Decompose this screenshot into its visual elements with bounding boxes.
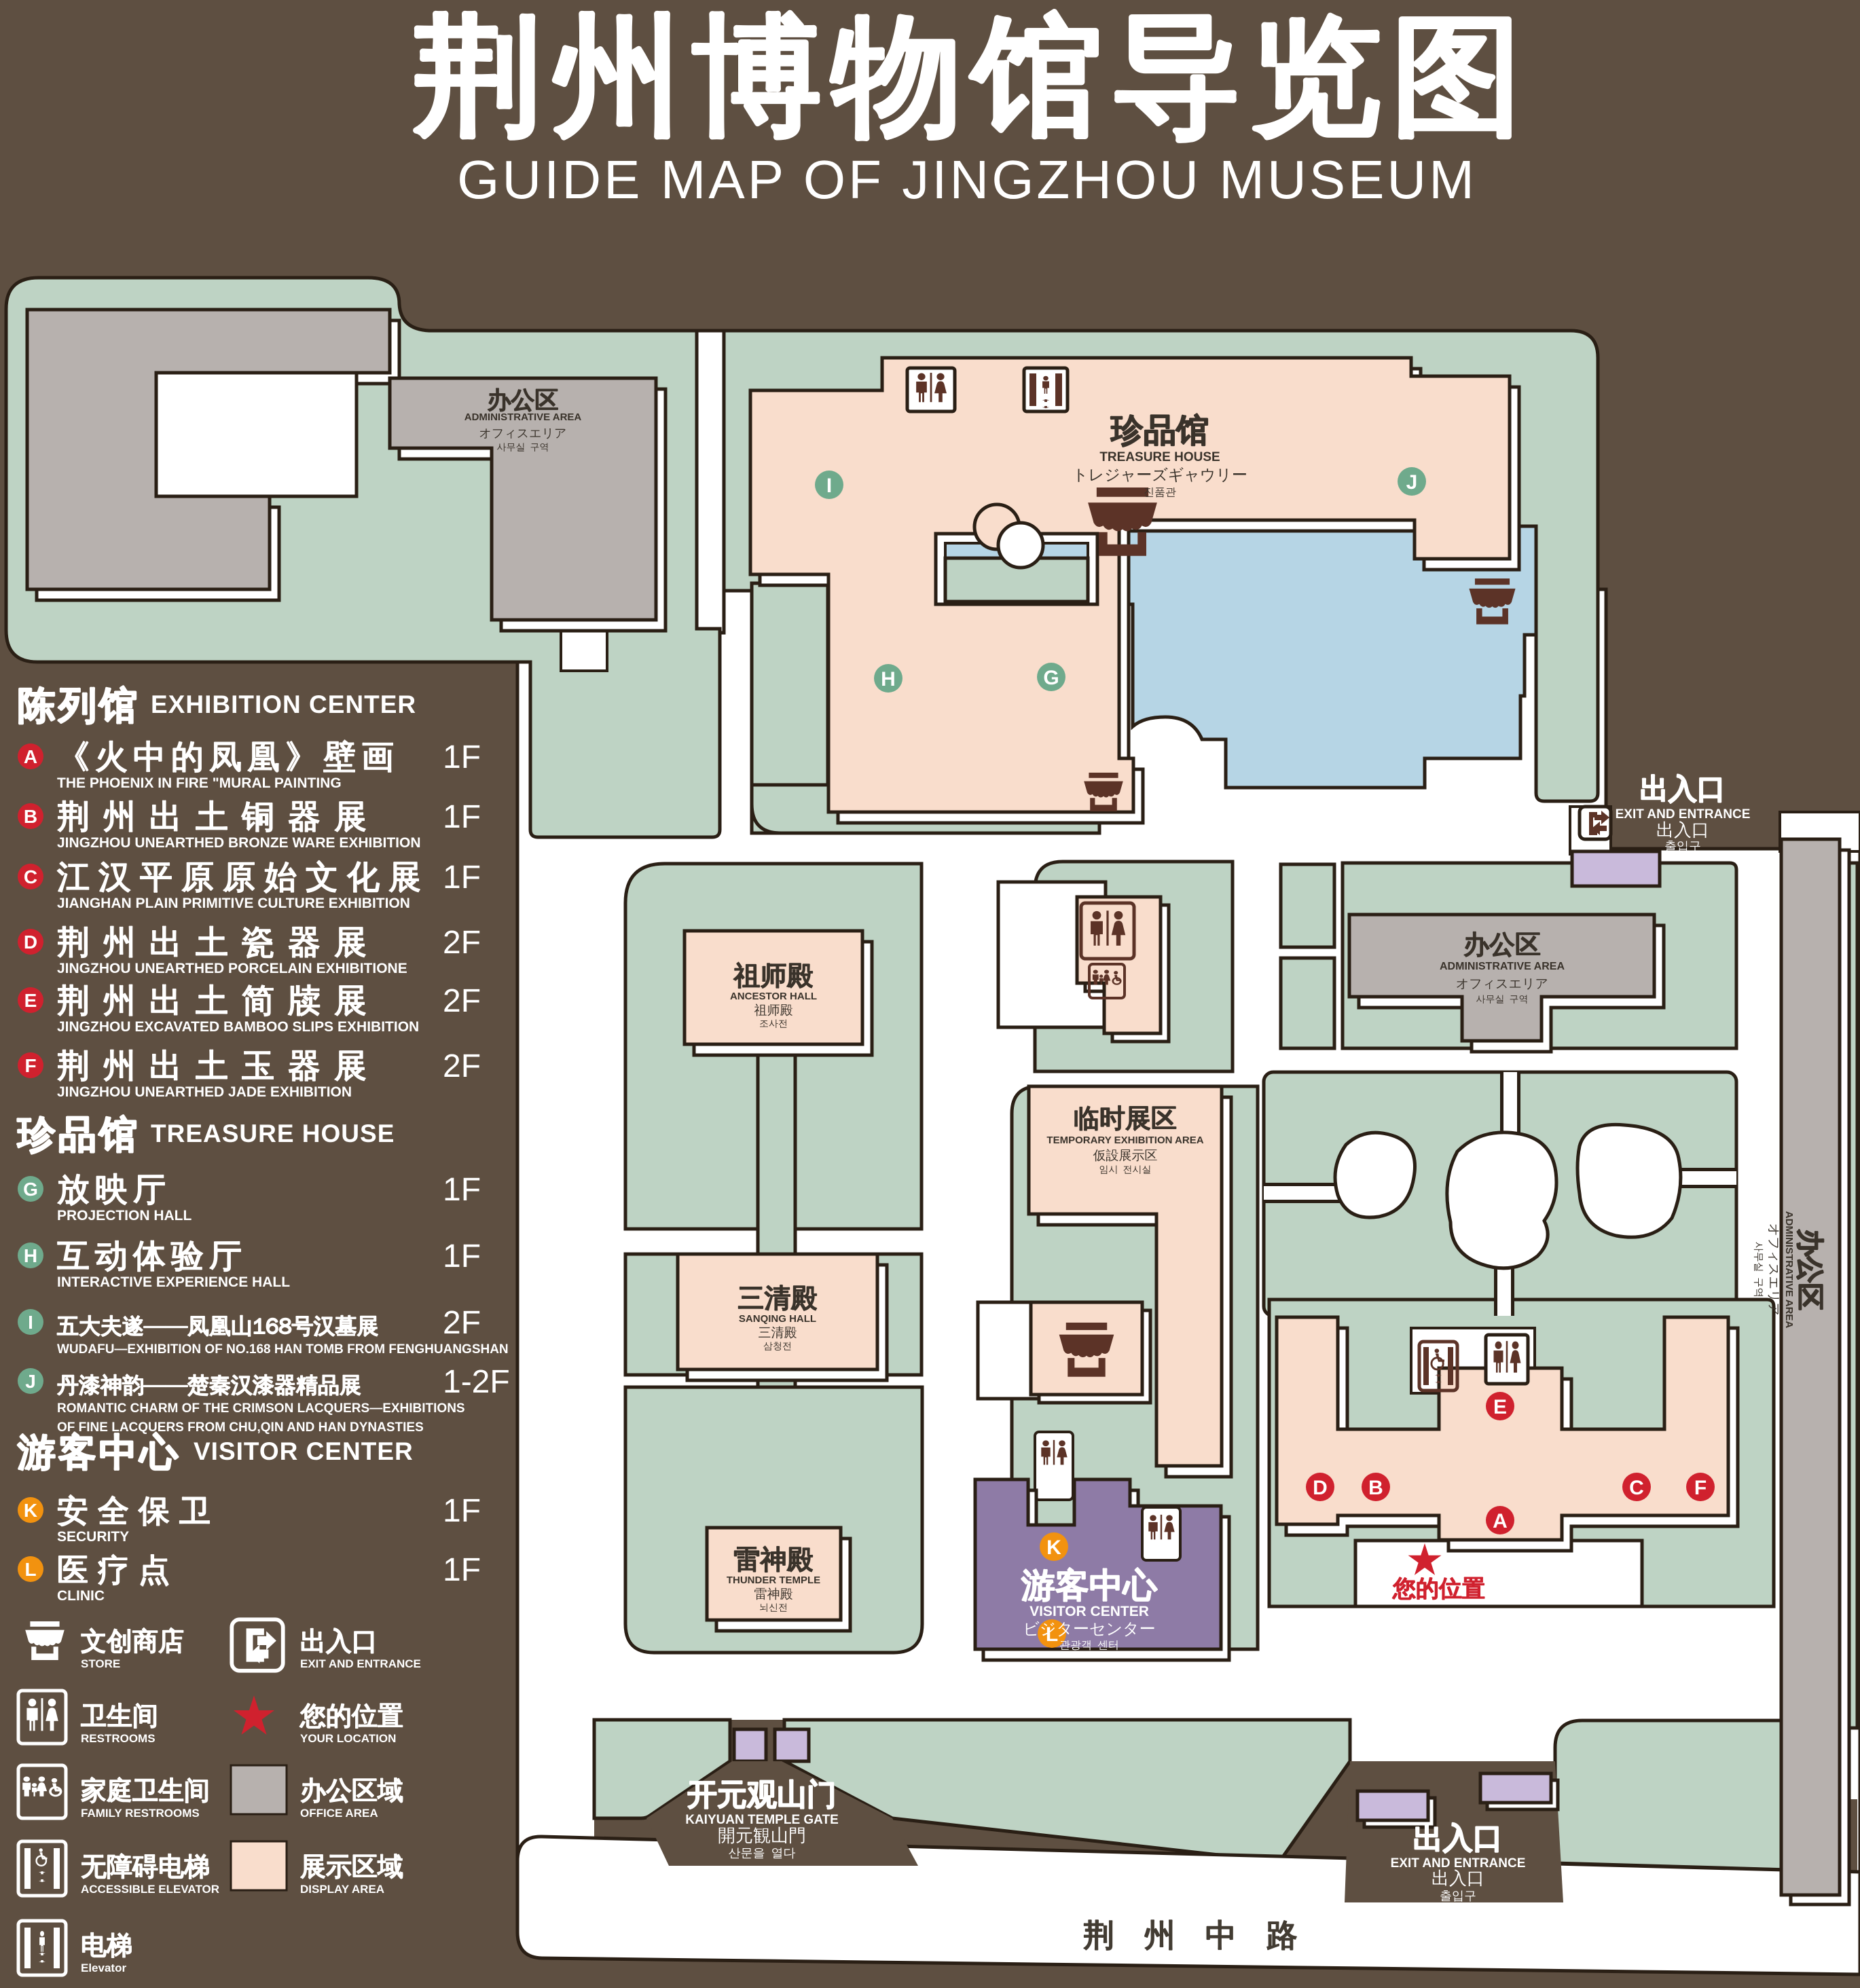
svg-text:J: J — [25, 1371, 36, 1392]
svg-text:STORE: STORE — [81, 1657, 120, 1670]
svg-text:SANQING HALL: SANQING HALL — [739, 1313, 816, 1325]
svg-text:B: B — [24, 806, 37, 827]
svg-text:OFFICE AREA: OFFICE AREA — [300, 1807, 378, 1820]
svg-text:Elevator: Elevator — [81, 1962, 126, 1974]
svg-text:JINGZHOU UNEARTHED PORCELAIN E: JINGZHOU UNEARTHED PORCELAIN EXHIBITIONE — [57, 961, 407, 976]
svg-text:TEMPORARY EXHIBITION AREA: TEMPORARY EXHIBITION AREA — [1046, 1135, 1203, 1146]
svg-text:I: I — [28, 1312, 33, 1333]
svg-text:L: L — [24, 1559, 36, 1580]
svg-text:VISITOR CENTER: VISITOR CENTER — [1029, 1604, 1149, 1619]
svg-text:VISITOR CENTER: VISITOR CENTER — [194, 1437, 414, 1465]
svg-text:YOUR LOCATION: YOUR LOCATION — [300, 1732, 396, 1745]
svg-text:TREASURE HOUSE: TREASURE HOUSE — [1099, 450, 1220, 464]
svg-text:L: L — [1046, 1623, 1058, 1646]
svg-text:C: C — [24, 866, 37, 887]
svg-text:K: K — [1046, 1536, 1061, 1559]
svg-text:EXIT AND ENTRANCE: EXIT AND ENTRANCE — [300, 1657, 421, 1670]
svg-text:ADMINISTRATIVE AREA: ADMINISTRATIVE AREA — [464, 411, 582, 423]
svg-text:2F: 2F — [443, 925, 481, 961]
svg-text:A: A — [1493, 1510, 1508, 1532]
svg-text:SECURITY: SECURITY — [57, 1529, 129, 1545]
svg-text:H: H — [881, 668, 896, 691]
svg-text:A: A — [24, 746, 37, 767]
svg-text:E: E — [1493, 1396, 1507, 1418]
svg-text:ADMINISTRATIVE AREA: ADMINISTRATIVE AREA — [1783, 1211, 1795, 1329]
svg-text:2F: 2F — [443, 1048, 481, 1084]
svg-text:WUDAFU—EXHIBITION OF NO.168 HA: WUDAFU—EXHIBITION OF NO.168 HAN TOMB FRO… — [57, 1342, 509, 1357]
svg-text:1F: 1F — [443, 1172, 481, 1208]
svg-text:1F: 1F — [443, 739, 481, 775]
svg-text:F: F — [1694, 1477, 1707, 1499]
svg-text:JIANGHAN PLAIN PRIMITIVE CULTU: JIANGHAN PLAIN PRIMITIVE CULTURE EXHIBIT… — [57, 896, 410, 911]
svg-text:ADMINISTRATIVE AREA: ADMINISTRATIVE AREA — [1440, 961, 1565, 972]
svg-text:1F: 1F — [443, 799, 481, 835]
svg-text:G: G — [23, 1179, 38, 1200]
svg-text:D: D — [1313, 1477, 1328, 1499]
svg-text:EXIT AND ENTRANCE: EXIT AND ENTRANCE — [1616, 807, 1751, 822]
svg-text:2F: 2F — [443, 983, 481, 1019]
svg-text:INTERACTIVE EXPERIENCE HALL: INTERACTIVE EXPERIENCE HALL — [57, 1274, 290, 1290]
svg-text:D: D — [24, 932, 37, 953]
svg-text:JINGZHOU UNEARTHED BRONZE WARE: JINGZHOU UNEARTHED BRONZE WARE EXHIBITIO… — [57, 835, 421, 851]
svg-text:1F: 1F — [443, 1493, 481, 1529]
svg-text:I: I — [826, 475, 832, 497]
svg-text:GUIDE MAP OF JINGZHOU MUSEUM: GUIDE MAP OF JINGZHOU MUSEUM — [457, 149, 1477, 210]
svg-text:FAMILY RESTROOMS: FAMILY RESTROOMS — [81, 1807, 200, 1820]
svg-text:CLINIC: CLINIC — [57, 1588, 105, 1604]
svg-text:1F: 1F — [443, 1238, 481, 1274]
svg-text:1F: 1F — [443, 1552, 481, 1588]
svg-text:E: E — [24, 990, 37, 1011]
svg-text:THUNDER TEMPLE: THUNDER TEMPLE — [727, 1575, 820, 1586]
svg-text:KAIYUAN TEMPLE GATE: KAIYUAN TEMPLE GATE — [685, 1813, 839, 1827]
svg-text:H: H — [24, 1245, 37, 1266]
svg-text:ACCESSIBLE ELEVATOR: ACCESSIBLE ELEVATOR — [81, 1883, 219, 1896]
svg-text:OF FINE LACQUERS FROM CHU,QIN: OF FINE LACQUERS FROM CHU,QIN AND HAN DY… — [57, 1420, 424, 1435]
svg-text:F: F — [24, 1055, 36, 1076]
svg-text:THE PHOENIX IN FIRE "MURAL PAI: THE PHOENIX IN FIRE "MURAL PAINTING — [57, 775, 342, 791]
svg-text:TREASURE HOUSE: TREASURE HOUSE — [151, 1120, 395, 1147]
svg-text:ANCESTOR HALL: ANCESTOR HALL — [730, 991, 817, 1002]
svg-text:2F: 2F — [443, 1305, 481, 1341]
svg-text:JINGZHOU UNEARTHED JADE EXHIBI: JINGZHOU UNEARTHED JADE EXHIBITION — [57, 1084, 352, 1100]
svg-text:K: K — [24, 1500, 37, 1521]
svg-text:ROMANTIC CHARM OF THE CRIMSON: ROMANTIC CHARM OF THE CRIMSON LACQUERS—E… — [57, 1401, 465, 1416]
svg-text:JINGZHOU EXCAVATED BAMBOO SLIP: JINGZHOU EXCAVATED BAMBOO SLIPS EXHIBITI… — [57, 1019, 419, 1035]
svg-text:B: B — [1368, 1477, 1383, 1499]
svg-text:C: C — [1629, 1477, 1644, 1499]
svg-text:RESTROOMS: RESTROOMS — [81, 1732, 156, 1745]
svg-text:EXHIBITION CENTER: EXHIBITION CENTER — [151, 691, 416, 718]
svg-text:PROJECTION HALL: PROJECTION HALL — [57, 1208, 192, 1223]
svg-text:1F: 1F — [443, 860, 481, 896]
svg-text:G: G — [1043, 667, 1059, 689]
svg-text:J: J — [1406, 471, 1418, 494]
svg-text:EXIT AND ENTRANCE: EXIT AND ENTRANCE — [1391, 1856, 1526, 1871]
svg-text:1-2F: 1-2F — [443, 1364, 510, 1400]
svg-text:DISPLAY AREA: DISPLAY AREA — [300, 1883, 384, 1896]
